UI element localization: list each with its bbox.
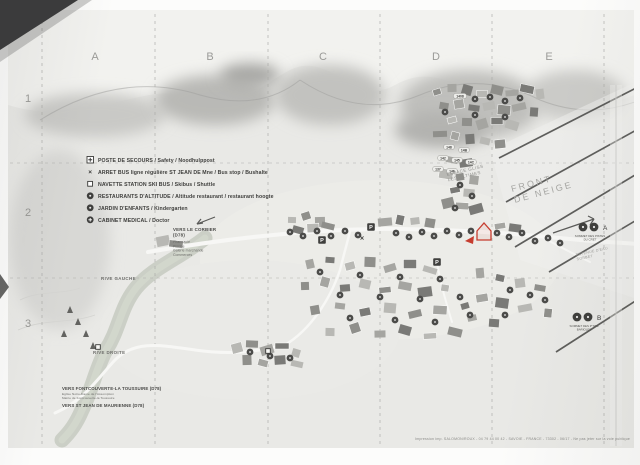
poi-badge-dot (399, 276, 401, 278)
poi-badge-dot (470, 230, 472, 232)
marker-a-caption-line: DU CRET (584, 238, 597, 242)
building (340, 284, 350, 292)
building (374, 330, 385, 337)
building (335, 302, 346, 309)
parking-letter: P (369, 225, 373, 231)
building (450, 131, 460, 141)
building (475, 293, 488, 303)
poi-badge-dot (489, 96, 491, 98)
building (441, 284, 450, 292)
grid-row-number: 3 (25, 318, 31, 330)
vers-st-jean: VERS ST JEAN DE MAURIENNE (D78) (62, 403, 145, 408)
building (494, 139, 506, 149)
poi-badge-dot (349, 317, 351, 319)
poi-badge-dot (521, 232, 523, 234)
poi-badge-dot (534, 240, 536, 242)
building (404, 260, 417, 269)
vers-st-jean-line: VERS ST JEAN DE MAURIENNE (D78) (62, 403, 145, 408)
building (364, 257, 375, 267)
building (433, 131, 447, 137)
grid-column-letter: A (91, 51, 99, 63)
poi-badge-dot (459, 184, 461, 186)
vers-le-corbier-line: (D78) (173, 233, 185, 238)
poi-badge-dot (469, 314, 471, 316)
building (424, 218, 435, 229)
poi-badge-dot (504, 100, 506, 102)
poi-badge-dot (547, 237, 549, 239)
poi-badge-dot (439, 278, 441, 280)
kindergarten-icon-glyph (89, 207, 91, 209)
poi-badge-dot (344, 230, 346, 232)
building (378, 217, 393, 226)
poi-badge-dot (458, 234, 460, 236)
building (447, 84, 456, 92)
legend-item-label: RESTAURANTS D'ALTITUDE / Altitude restau… (98, 194, 274, 200)
building (246, 340, 258, 347)
lift-marker-dot (576, 316, 578, 318)
chalet-number: 1408 (456, 94, 464, 98)
building (242, 355, 251, 365)
building (310, 305, 320, 315)
lift-marker-letter: B (597, 315, 601, 322)
rive-gauche: RIVE GAUCHE (101, 276, 136, 281)
poi-badge-dot (316, 230, 318, 232)
lift-marker-letter: A (603, 225, 608, 232)
building (274, 355, 286, 365)
building (288, 217, 296, 223)
poi-badge-dot (496, 232, 498, 234)
building (530, 107, 539, 117)
building (433, 305, 447, 315)
mountain-shadow (220, 63, 280, 87)
poi-badge-dot (421, 231, 423, 233)
poi-badge-dot (302, 235, 304, 237)
parking-letter: P (435, 260, 439, 266)
building (395, 214, 405, 225)
building (491, 118, 503, 125)
poi-badge-dot (444, 111, 446, 113)
building (379, 286, 392, 293)
building (462, 118, 472, 126)
poi-badge-dot (559, 242, 561, 244)
poi-badge-dot (544, 299, 546, 301)
chalet-number: 145 (454, 158, 460, 162)
poi-badge-dot (379, 296, 381, 298)
vers-fontcouverte-line: VERS FONTCOUVERTE-LA TOUSSUIRE (D78) (62, 386, 162, 391)
building (465, 134, 475, 145)
building (423, 333, 436, 340)
rive-gauche-line: RIVE GAUCHE (101, 276, 136, 281)
building (410, 217, 420, 225)
rive-droite-line: RIVE DROITE (93, 350, 125, 355)
poi-badge-dot (433, 235, 435, 237)
building (325, 328, 334, 336)
poi-badge-dot (359, 274, 361, 276)
poi-badge-dot (339, 294, 341, 296)
poi-badge-dot (459, 296, 461, 298)
building (476, 90, 487, 98)
grid-row-number: 2 (25, 207, 31, 219)
lift-marker-dot (587, 316, 589, 318)
poi-badge-dot (319, 271, 321, 273)
grid-column-letter: B (206, 51, 213, 63)
poi-badge-dot (504, 314, 506, 316)
chalet-number: 137 (435, 167, 441, 171)
chalet-number: 14B (461, 148, 468, 152)
legend-item-label: POSTE DE SECOURS / Safety / Noodhulppost (98, 158, 215, 164)
legend-item-label: JARDIN D'ENFANTS / Kindergarten (98, 206, 188, 212)
parking-letter: P (320, 238, 324, 244)
building (476, 268, 485, 279)
mountain-shadow (25, 93, 165, 137)
poi-badge-dot (529, 294, 531, 296)
building (275, 343, 289, 349)
poi-badge-dot (446, 230, 448, 232)
shuttle-stop-icon (266, 349, 271, 354)
building (495, 297, 509, 309)
vers-le-corbier-line: VERS LE CORBIER (173, 227, 217, 232)
photo-edge-notch (0, 274, 9, 299)
poi-badge-dot (394, 319, 396, 321)
building (384, 302, 397, 313)
vers-fontcouverte: VERS FONTCOUVERTE-LA TOUSSUIRE (D78) (62, 386, 162, 391)
building (514, 278, 525, 288)
building (301, 282, 309, 290)
shuttle-stop-icon (96, 345, 101, 350)
poi-badge-dot (474, 114, 476, 116)
poi-badge-dot (289, 357, 291, 359)
grid-column-letter: E (545, 51, 552, 63)
poi-badge-dot (471, 195, 473, 197)
poi-badge-dot (395, 232, 397, 234)
bus-stop-icon: × (88, 169, 92, 176)
chalet-number: 148 (446, 145, 452, 149)
poi-badge-dot (454, 207, 456, 209)
chalet-number: 14C (468, 160, 475, 164)
building (535, 89, 544, 100)
rive-droite: RIVE DROITE (93, 350, 125, 355)
photographed-village-map: 14814B14214514C1371461408PPP×AB ABCDE123… (0, 0, 640, 465)
poi-badge-dot (249, 351, 251, 353)
legend-item-label: CABINET MEDICAL / Doctor (98, 218, 169, 224)
fontcouverte-services-line: Mairie de Fontcouverte-la Toussuire (62, 396, 115, 400)
poi-badge-dot (509, 289, 511, 291)
legend-item-label: NAVETTE STATION SKI BUS / Skibus / Shutt… (98, 182, 215, 188)
corbier-services-line: Commerces (173, 253, 192, 257)
shuttle-stop-icon (88, 181, 93, 186)
poi-badge-dot (419, 298, 421, 300)
building (489, 319, 500, 328)
poi-badge-dot (434, 321, 436, 323)
grid-row-number: 1 (25, 93, 31, 105)
lift-marker-dot (582, 226, 584, 228)
poi-badge-dot (357, 234, 359, 236)
lift-marker-dot (593, 226, 595, 228)
building (544, 308, 553, 318)
poi-badge-dot (504, 116, 506, 118)
legend-item-label: ARRET BUS ligne régulière ST JEAN DE Mne… (98, 170, 268, 176)
hillside-shading (10, 150, 110, 330)
building (325, 257, 334, 264)
poi-badge-dot (269, 355, 271, 357)
restaurant-icon-glyph (89, 195, 91, 197)
poi-badge-dot (474, 98, 476, 100)
bus-stop-icon: × (360, 235, 364, 242)
chalet-number: 142 (440, 156, 446, 160)
building (495, 274, 505, 283)
mountain-shadow (275, 65, 385, 125)
building (453, 99, 464, 109)
poi-badge-dot (408, 236, 410, 238)
resort-map: 14814B14214514C1371461408PPP×AB ABCDE123… (0, 0, 640, 465)
grid-column-letter: D (432, 51, 440, 63)
footer-imprint: Impression imp. SALOMON/ROUX - 04 79 44 … (415, 437, 630, 441)
fontcouverte-services: Eglise Notre-Dame de l'AssomptionMairie … (62, 392, 115, 400)
poi-badge-dot (519, 97, 521, 99)
poi-badge-dot (289, 231, 291, 233)
grid-column-letter: C (319, 51, 327, 63)
marker-b-caption-line: BARIOLES (577, 328, 592, 332)
poi-badge-dot (330, 235, 332, 237)
building (505, 89, 518, 96)
poi-badge-dot (508, 236, 510, 238)
